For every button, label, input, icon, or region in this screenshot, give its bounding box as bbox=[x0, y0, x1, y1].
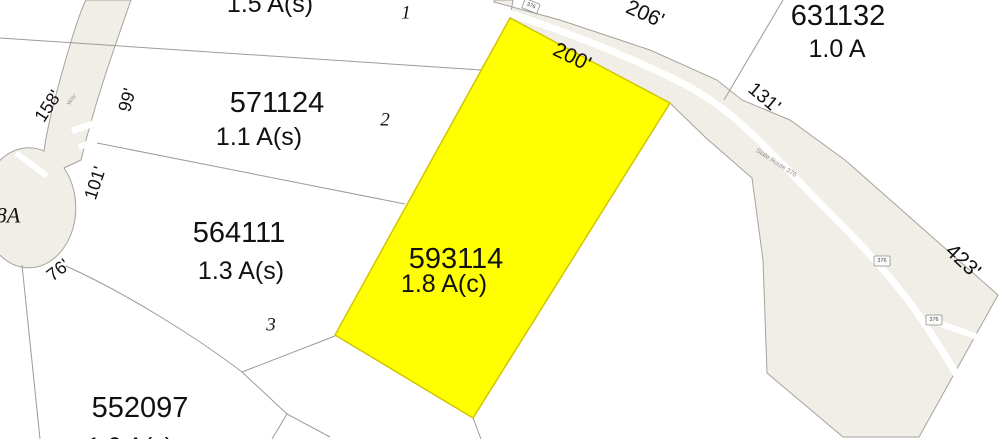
parcel-map-canvas: 376 376 376 State Route 376 Way 1.5 A(s)… bbox=[0, 0, 1000, 439]
shield-label: 376 bbox=[877, 258, 886, 264]
parcel-area-631132: 1.0 A bbox=[809, 35, 866, 63]
parcel-area-571124: 1.1 A(s) bbox=[216, 123, 302, 151]
parcel-area-lot1: 1.5 A(s) bbox=[227, 0, 313, 18]
parcel-area-552097: 1.0 A(s) bbox=[87, 433, 173, 439]
map-svg: 376 376 376 State Route 376 Way 1.5 A(s)… bbox=[0, 0, 1000, 439]
lot-number-1: 1 bbox=[401, 3, 411, 24]
lot-number-2: 2 bbox=[380, 110, 390, 131]
shield-label: 376 bbox=[929, 317, 938, 323]
route-shield-icon: 376 bbox=[874, 256, 890, 266]
parcel-apn-564111: 564111 bbox=[193, 217, 285, 249]
parcel-area-564111: 1.3 A(s) bbox=[198, 257, 284, 285]
parcel-label-8a: 8A bbox=[0, 203, 21, 228]
parcel-area-593114: 1.8 A(c) bbox=[401, 270, 487, 298]
parcel-apn-631132: 631132 bbox=[791, 0, 886, 32]
lot-number-3: 3 bbox=[265, 315, 276, 336]
parcel-apn-552097: 552097 bbox=[92, 392, 189, 424]
route-shield-icon: 376 bbox=[926, 315, 942, 325]
parcel-apn-571124: 571124 bbox=[230, 87, 325, 119]
